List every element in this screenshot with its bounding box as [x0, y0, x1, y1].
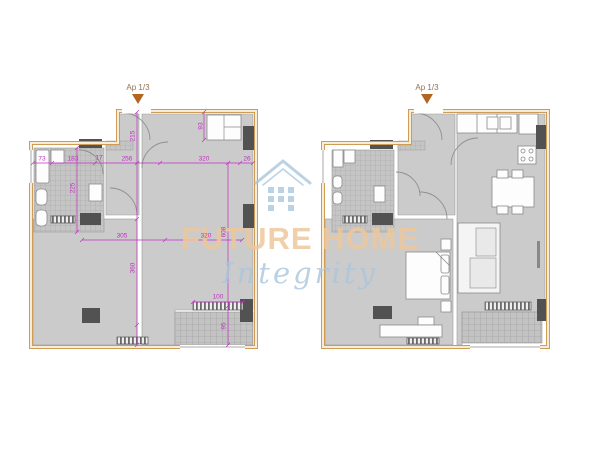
column — [243, 126, 255, 150]
floor-plans-drawing — [0, 0, 600, 450]
apartment-marker-right: Ap 1/3 — [401, 83, 453, 104]
closet — [207, 115, 241, 140]
column — [82, 308, 100, 323]
radiator — [193, 302, 243, 310]
floor-plan-right — [323, 111, 550, 347]
bedroom-floor — [33, 219, 137, 345]
radiator — [343, 216, 367, 223]
kitchen-cabinet — [519, 114, 538, 134]
column — [373, 306, 392, 319]
marker-triangle-icon — [421, 94, 433, 104]
bathtub — [36, 150, 49, 183]
sink-basin — [500, 117, 511, 129]
balcony-tiles — [462, 312, 542, 343]
dining-table — [492, 170, 534, 214]
washer — [51, 150, 64, 163]
radiator — [51, 216, 75, 223]
toilet — [333, 176, 342, 188]
radiator — [117, 337, 148, 344]
sink-basin — [487, 117, 498, 129]
nightstand — [441, 239, 451, 250]
apartment-marker-left: Ap 1/3 — [112, 83, 164, 104]
chair — [497, 170, 508, 178]
sink — [89, 184, 102, 201]
pillow — [441, 276, 449, 294]
column — [80, 213, 101, 225]
radiator — [407, 338, 439, 344]
bidet — [36, 210, 47, 226]
chair — [512, 206, 523, 214]
sink — [374, 186, 385, 202]
toilet — [36, 189, 47, 205]
chair — [497, 206, 508, 214]
marker-triangle-icon — [132, 94, 144, 104]
apartment-label: Ap 1/3 — [415, 83, 438, 92]
column — [372, 213, 393, 225]
hall-floor — [398, 114, 455, 215]
nightstand — [441, 301, 451, 312]
chair — [512, 170, 523, 178]
stove — [518, 146, 536, 164]
column — [243, 204, 255, 228]
radiator — [485, 302, 531, 310]
sofa-cushion — [476, 228, 496, 256]
living-floor — [142, 114, 253, 345]
dresser — [380, 325, 442, 337]
tv — [537, 241, 540, 268]
washer — [344, 150, 355, 163]
hall-floor — [106, 114, 139, 215]
floorplan-canvas: FUTURE HOME Integrity Ap 1/3 Ap 1/3 7318… — [0, 0, 600, 450]
apartment-label: Ap 1/3 — [126, 83, 149, 92]
sofa-cushion — [470, 258, 496, 288]
shower — [333, 150, 343, 167]
bidet — [333, 192, 342, 204]
floor-plan-left — [31, 110, 256, 347]
bench — [418, 317, 434, 325]
